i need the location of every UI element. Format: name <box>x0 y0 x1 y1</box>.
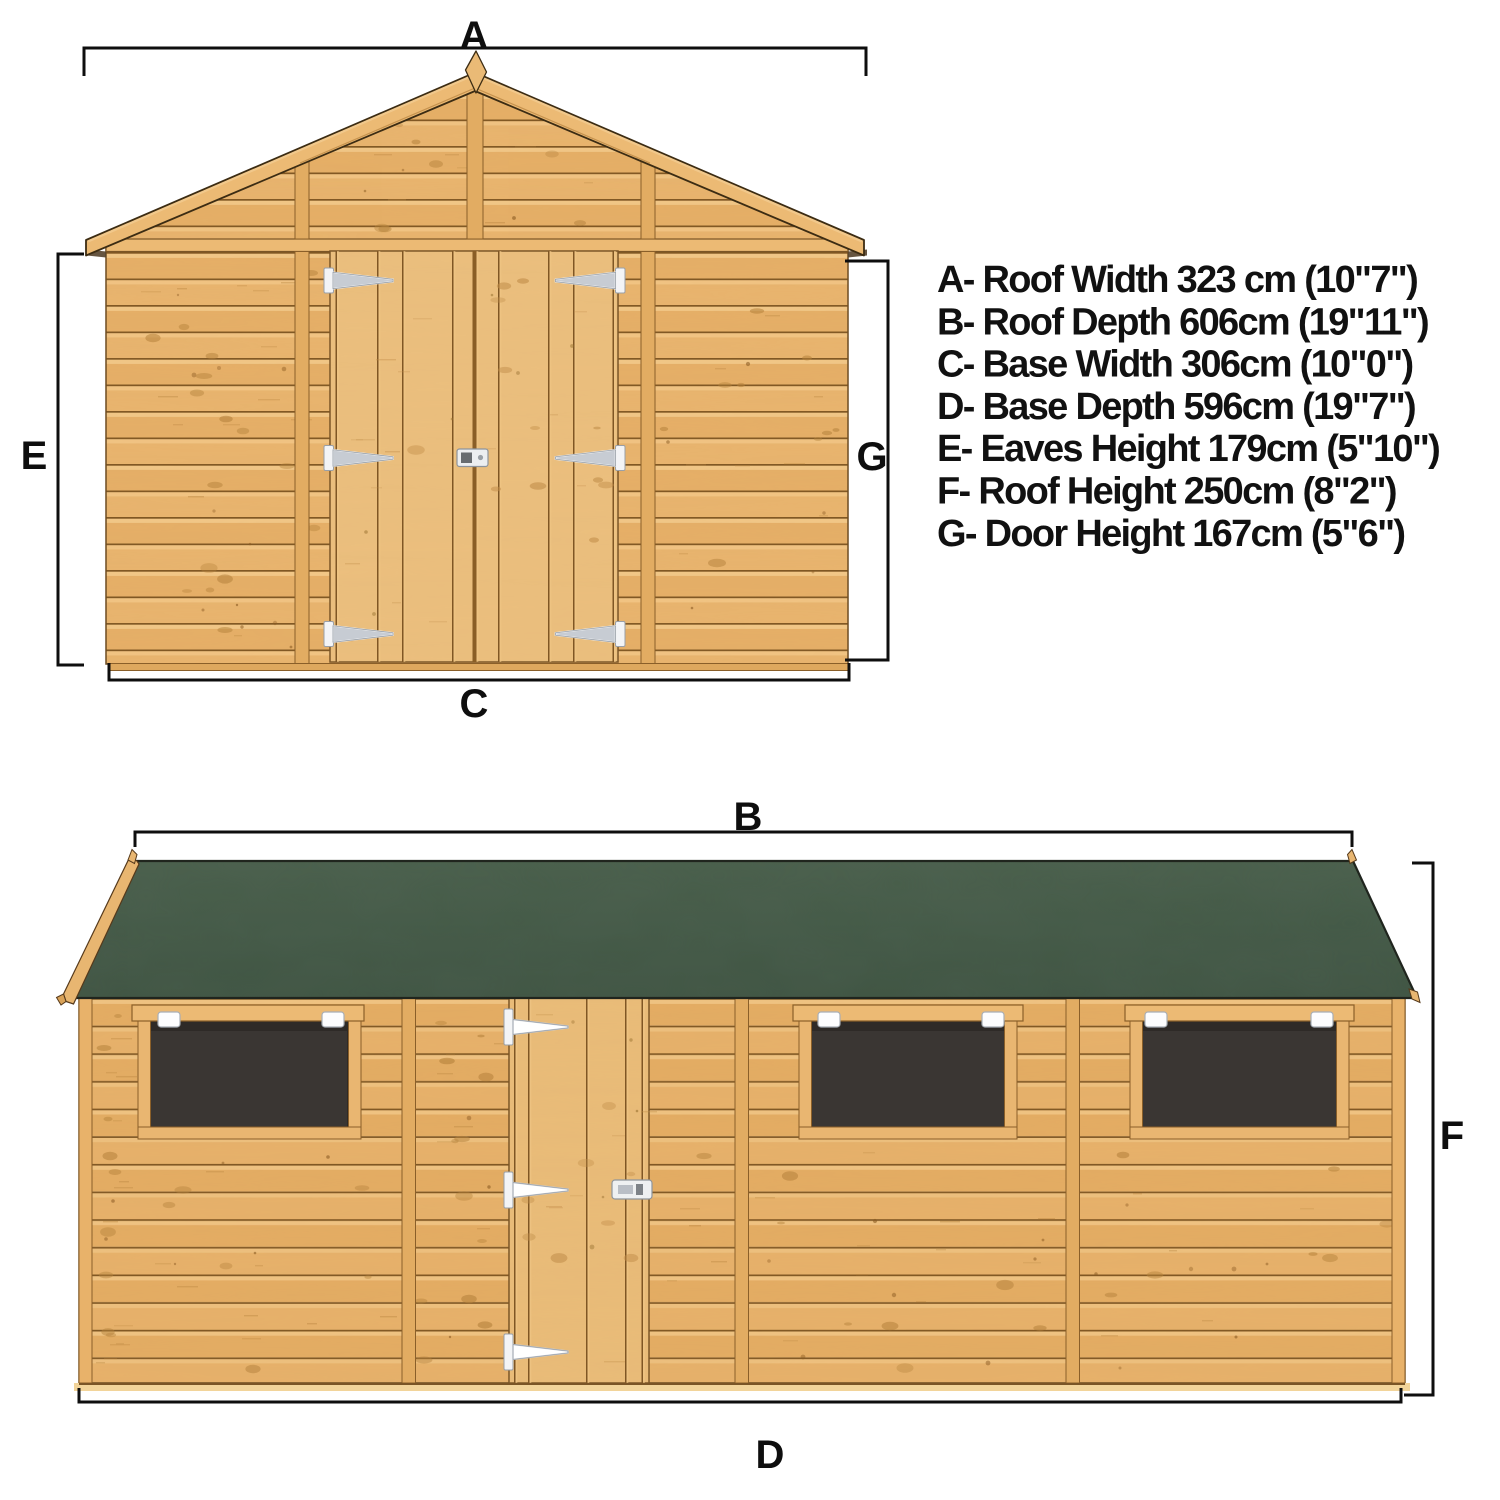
svg-text:G- Door Height 167cm (5"6"): G- Door Height 167cm (5"6") <box>937 513 1404 555</box>
svg-text:F: F <box>1440 1114 1464 1158</box>
svg-text:B- Roof Depth 606cm (19"11"): B- Roof Depth 606cm (19"11") <box>937 301 1428 343</box>
svg-text:E- Eaves Height 179cm (5"10"): E- Eaves Height 179cm (5"10") <box>937 428 1439 470</box>
svg-text:F- Roof Height 250cm (8"2"): F- Roof Height 250cm (8"2") <box>937 471 1396 513</box>
svg-text:A: A <box>460 14 489 58</box>
svg-text:C- Base Width 306cm (10"0"): C- Base Width 306cm (10"0") <box>937 344 1413 386</box>
svg-text:E: E <box>21 434 48 478</box>
svg-text:G: G <box>856 435 887 479</box>
svg-text:A- Roof Width 323 cm (10"7"): A- Roof Width 323 cm (10"7") <box>937 259 1417 301</box>
svg-text:B: B <box>734 795 763 839</box>
svg-text:D: D <box>756 1433 785 1477</box>
svg-text:C: C <box>460 682 489 726</box>
svg-text:D- Base Depth 596cm (19"7"): D- Base Depth 596cm (19"7") <box>937 386 1415 428</box>
